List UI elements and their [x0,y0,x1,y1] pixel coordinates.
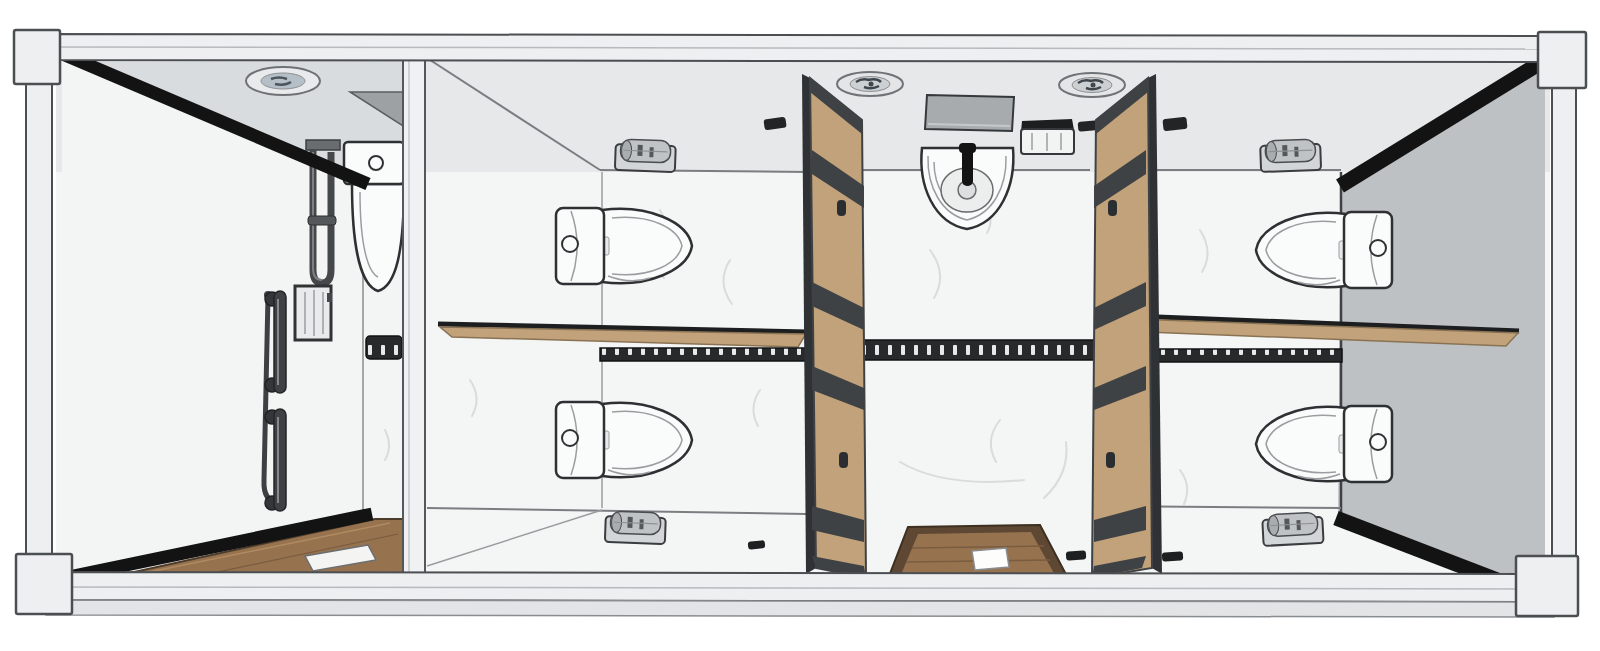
floor-stop-right [1162,551,1184,561]
ceiling-fan-left [837,72,903,96]
divider-wall [403,55,425,575]
frame-post-right [1552,86,1576,560]
corner-post-bottom-left [16,554,72,614]
corridor-vent-strip [850,340,1094,360]
floorplan-canvas [0,0,1600,651]
drain-plate [972,548,1009,570]
stall-door-wall-right [1092,74,1162,578]
door-handle-left-top [837,200,846,216]
restroom-floorplan-rendering [0,0,1600,651]
left-room-vent-grille [366,336,402,359]
tp-holder-top-right [1260,139,1321,172]
shower-control-box [295,286,332,340]
door-handle-right-top [1108,200,1117,216]
ceiling-fan-right [1059,73,1125,97]
door-handle-left-bottom [839,452,848,468]
frame-post-left [26,82,52,560]
corner-post-top-right [1538,32,1586,88]
paper-towel-dispenser [1021,119,1074,154]
tp-holder-top-left [615,139,676,172]
tp-holder-bottom-left [605,511,666,544]
corner-post-bottom-right [1516,556,1578,616]
floor-stop-center [1066,550,1087,560]
corner-post-top-left [14,30,60,84]
wall-switch-right [1162,117,1187,131]
tp-holder-bottom-right [1262,512,1324,546]
ceiling-light [246,67,320,95]
stall-door-wall-left [802,74,866,578]
door-handle-right-bottom [1106,452,1115,468]
